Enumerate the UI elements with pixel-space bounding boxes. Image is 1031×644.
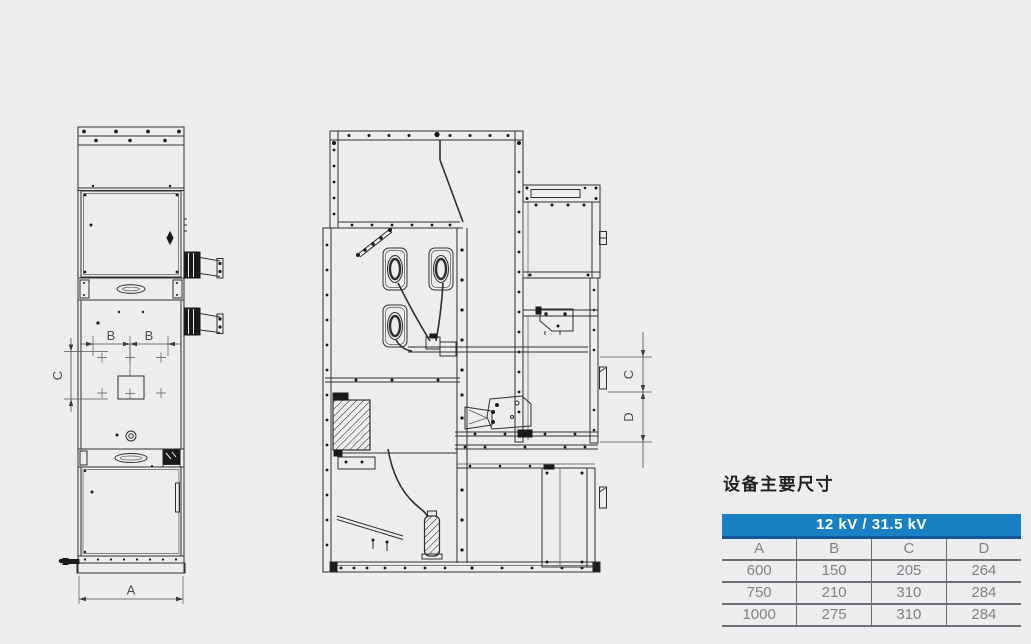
lower-handle-band [78, 449, 184, 467]
busbar-joint [440, 342, 456, 356]
rear-door-handle [600, 367, 607, 389]
dimension-label-A: A [127, 583, 136, 598]
dim-cell: 150 [797, 560, 872, 582]
power-cable [388, 449, 427, 516]
side-terminal-lower [184, 308, 223, 335]
table-row: 1000 275 310 284 [722, 604, 1021, 626]
side-terminal-upper [184, 252, 223, 278]
dimension-A: A [79, 576, 183, 604]
center-partition [457, 228, 467, 563]
dim-cell: 284 [946, 582, 1021, 604]
inspection-window [118, 376, 144, 399]
breaker-bushing-icons [383, 248, 453, 351]
voltage-rating-header: 12 kV / 31.5 kV [722, 514, 1021, 538]
col-header-C: C [872, 538, 947, 561]
busbar-compartment [330, 131, 523, 442]
handle-slot [117, 285, 145, 294]
table-row: 600 150 205 264 [722, 560, 1021, 582]
low-voltage-compartment [523, 185, 607, 278]
upper-handle-band [78, 278, 184, 300]
bushing-top-left [383, 248, 407, 290]
table-row: 750 210 310 284 [722, 582, 1021, 604]
dimension-D-section: D [600, 392, 652, 442]
dimension-label-D-section: D [621, 412, 636, 421]
col-header-A: A [722, 538, 797, 561]
ground-terminal-icon [59, 559, 79, 565]
rear-lower-door [457, 464, 607, 567]
dim-cell: 600 [722, 560, 797, 582]
dimension-C-section: C [600, 332, 652, 468]
door-lock-icon [167, 232, 173, 244]
dimensions-panel: 设备主要尺寸 12 kV / 31.5 kV A B C D 600 150 2… [722, 470, 1021, 627]
pressure-relief-flap [440, 140, 463, 222]
left-shelf [334, 450, 457, 469]
dim-cell: 205 [872, 560, 947, 582]
col-header-D: D [946, 538, 1021, 561]
lock-mechanism [163, 450, 180, 464]
dim-cell: 284 [946, 604, 1021, 626]
dim-cell: 210 [797, 582, 872, 604]
current-transformer [325, 378, 460, 450]
dim-cell: 264 [946, 560, 1021, 582]
dim-cell: 750 [722, 582, 797, 604]
dimension-label-C-section: C [621, 370, 636, 379]
panel-title: 设备主要尺寸 [723, 470, 1021, 495]
bushing-top-right [429, 248, 453, 290]
dimension-label-B-left: B [107, 328, 116, 343]
dimension-C-front: C [50, 338, 108, 412]
dimension-label-C-front: C [50, 371, 65, 380]
dim-cell: 310 [872, 582, 947, 604]
dim-cell: 275 [797, 604, 872, 626]
dim-cell: 310 [872, 604, 947, 626]
cable-compartment [337, 449, 442, 559]
page: B B C [0, 0, 1031, 644]
lower-door [81, 467, 181, 556]
racking-mechanism [455, 396, 598, 449]
support-insulator [422, 511, 442, 559]
operation-knob [126, 431, 136, 441]
dim-cell: 1000 [722, 604, 797, 626]
upper-door [81, 191, 187, 277]
rear-mid-section [523, 278, 607, 443]
mounting-cross-marks [97, 344, 166, 399]
dimensions-table: 12 kV / 31.5 kV A B C D 600 150 205 264 … [722, 514, 1021, 627]
dimension-label-B-right: B [145, 328, 154, 343]
front-view: B B C [50, 127, 223, 604]
col-header-B: B [797, 538, 872, 561]
bushing-bottom-left [383, 305, 407, 347]
left-wall [323, 228, 331, 572]
section-view: C D [323, 131, 652, 572]
middle-door [81, 300, 181, 449]
